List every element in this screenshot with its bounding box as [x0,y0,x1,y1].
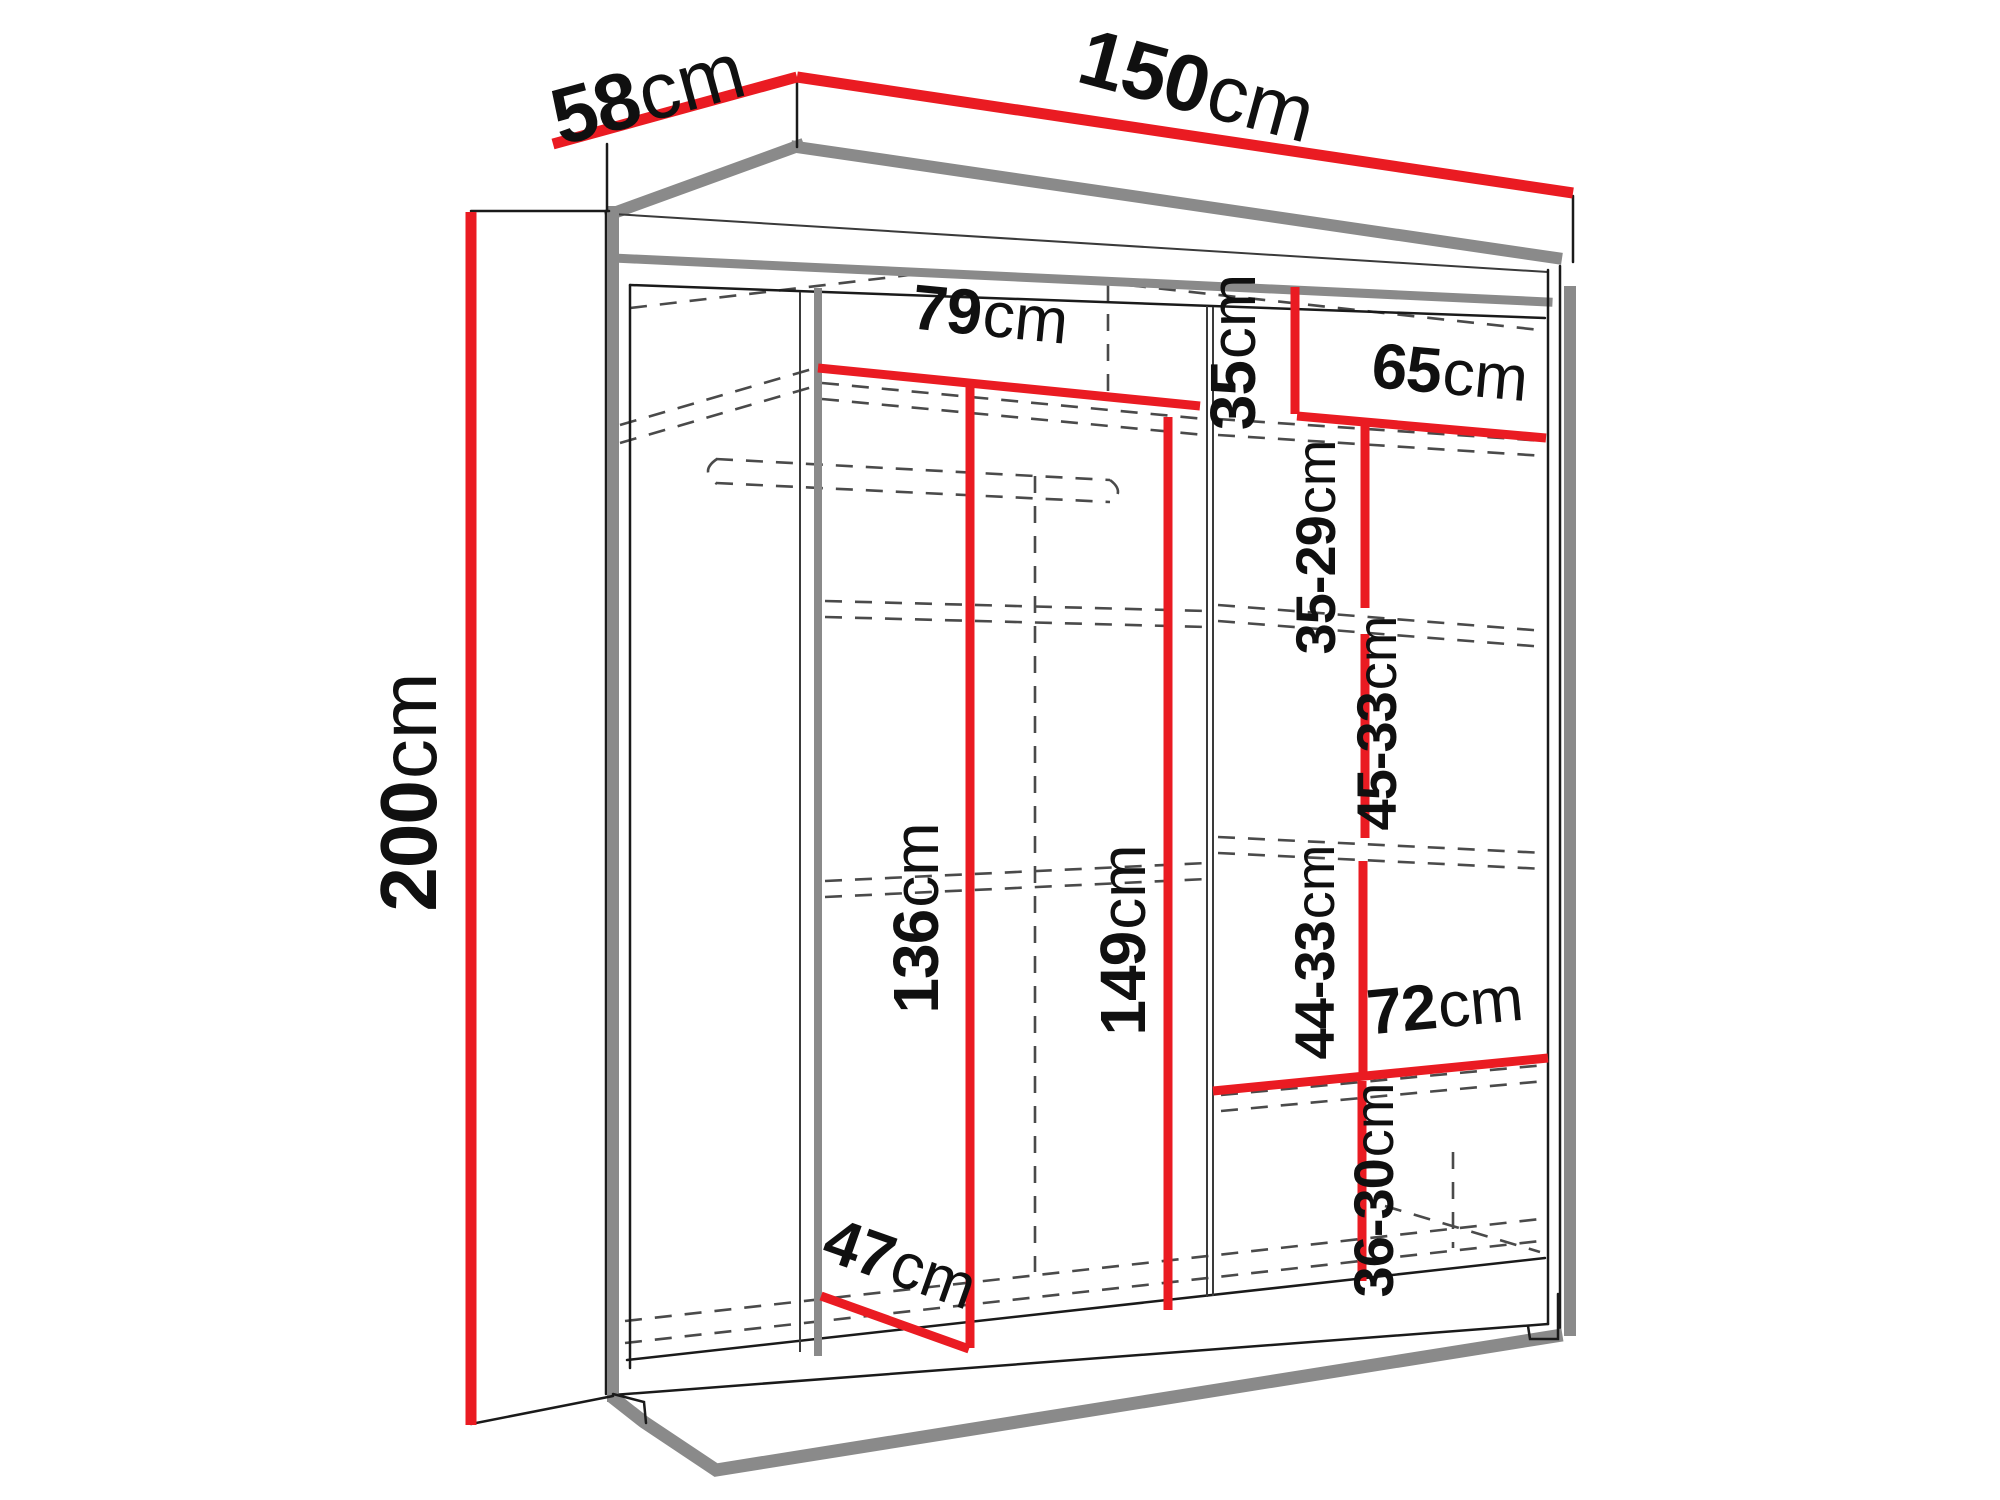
bottom-shadow [616,1336,1556,1470]
middle-shelf-2b [825,617,1207,627]
label-58cm: 58cm [542,25,754,162]
diagram-canvas: 58cm 150cm 200cm 79cm 35cm 65cm 35-29cm … [0,0,2000,1500]
hanging-rail [708,459,1118,503]
label-72cm: 72cm [1364,962,1527,1049]
label-200cm: 200cm [364,672,453,911]
label-149cm: 149cm [1087,844,1159,1035]
dim-line-65 [1297,416,1546,438]
label-35cm: 35cm [1197,274,1269,431]
right-shelf-3b [1218,853,1545,869]
hanging-rail-right-cap [1110,480,1118,503]
left-shelf-back-edge-a [620,369,812,425]
extension-line-bottom-left [471,1396,613,1424]
floor-right-edge [1385,1206,1540,1252]
label-79cm: 79cm [909,271,1072,358]
interior-floor-front-edge [627,1258,1545,1360]
wardrobe-dimension-diagram: 58cm 150cm 200cm 79cm 35cm 65cm 35-29cm … [0,0,2000,1500]
label-36-30cm: 36-30cm [1342,1083,1405,1298]
hanging-rail-bottom [716,483,1110,502]
label-45-33cm: 45-33cm [1345,616,1408,831]
hanging-rail-top [716,459,1110,480]
label-35-29cm: 35-29cm [1284,440,1347,655]
right-shelf-3a [1218,837,1545,853]
hanging-rail-left-cap [708,459,717,484]
label-65cm: 65cm [1369,329,1531,415]
middle-shelf-2a [825,601,1207,611]
left-shelf-back-edge-b [620,387,812,443]
label-136cm: 136cm [880,822,952,1013]
label-44-33cm: 44-33cm [1283,845,1346,1060]
